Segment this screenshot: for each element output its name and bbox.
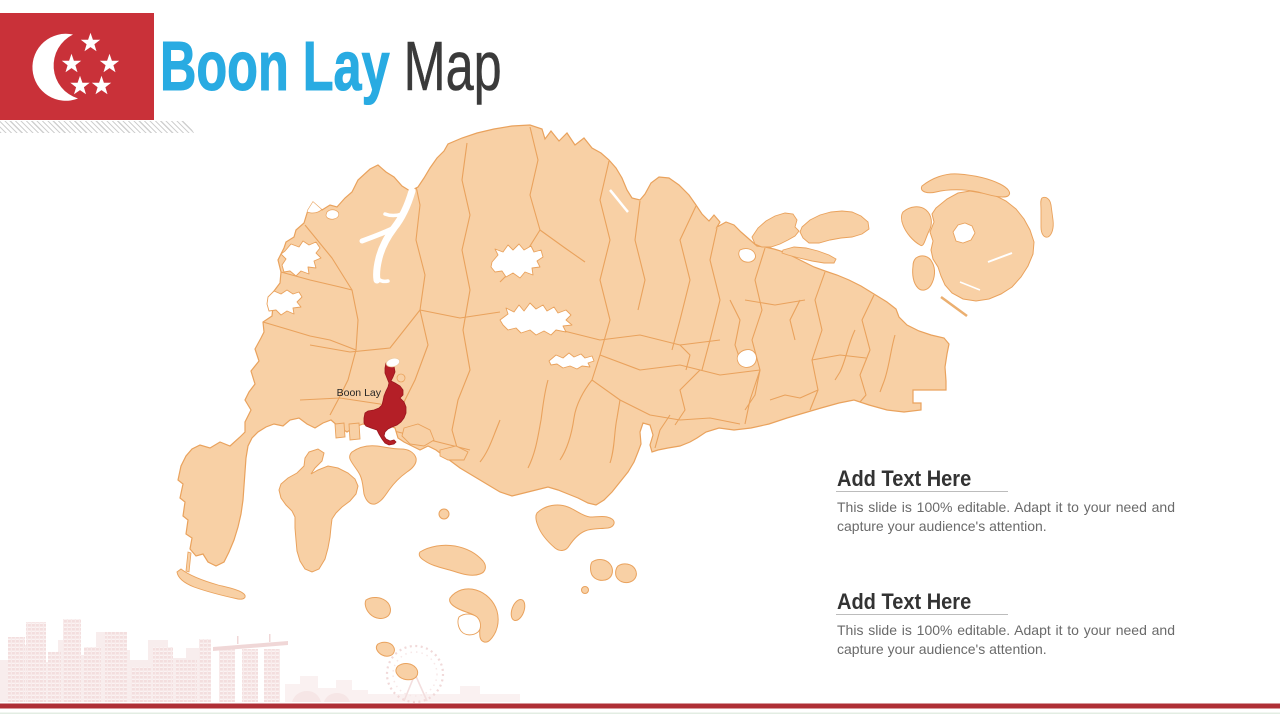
svg-text:Boon Lay: Boon Lay <box>337 387 382 399</box>
